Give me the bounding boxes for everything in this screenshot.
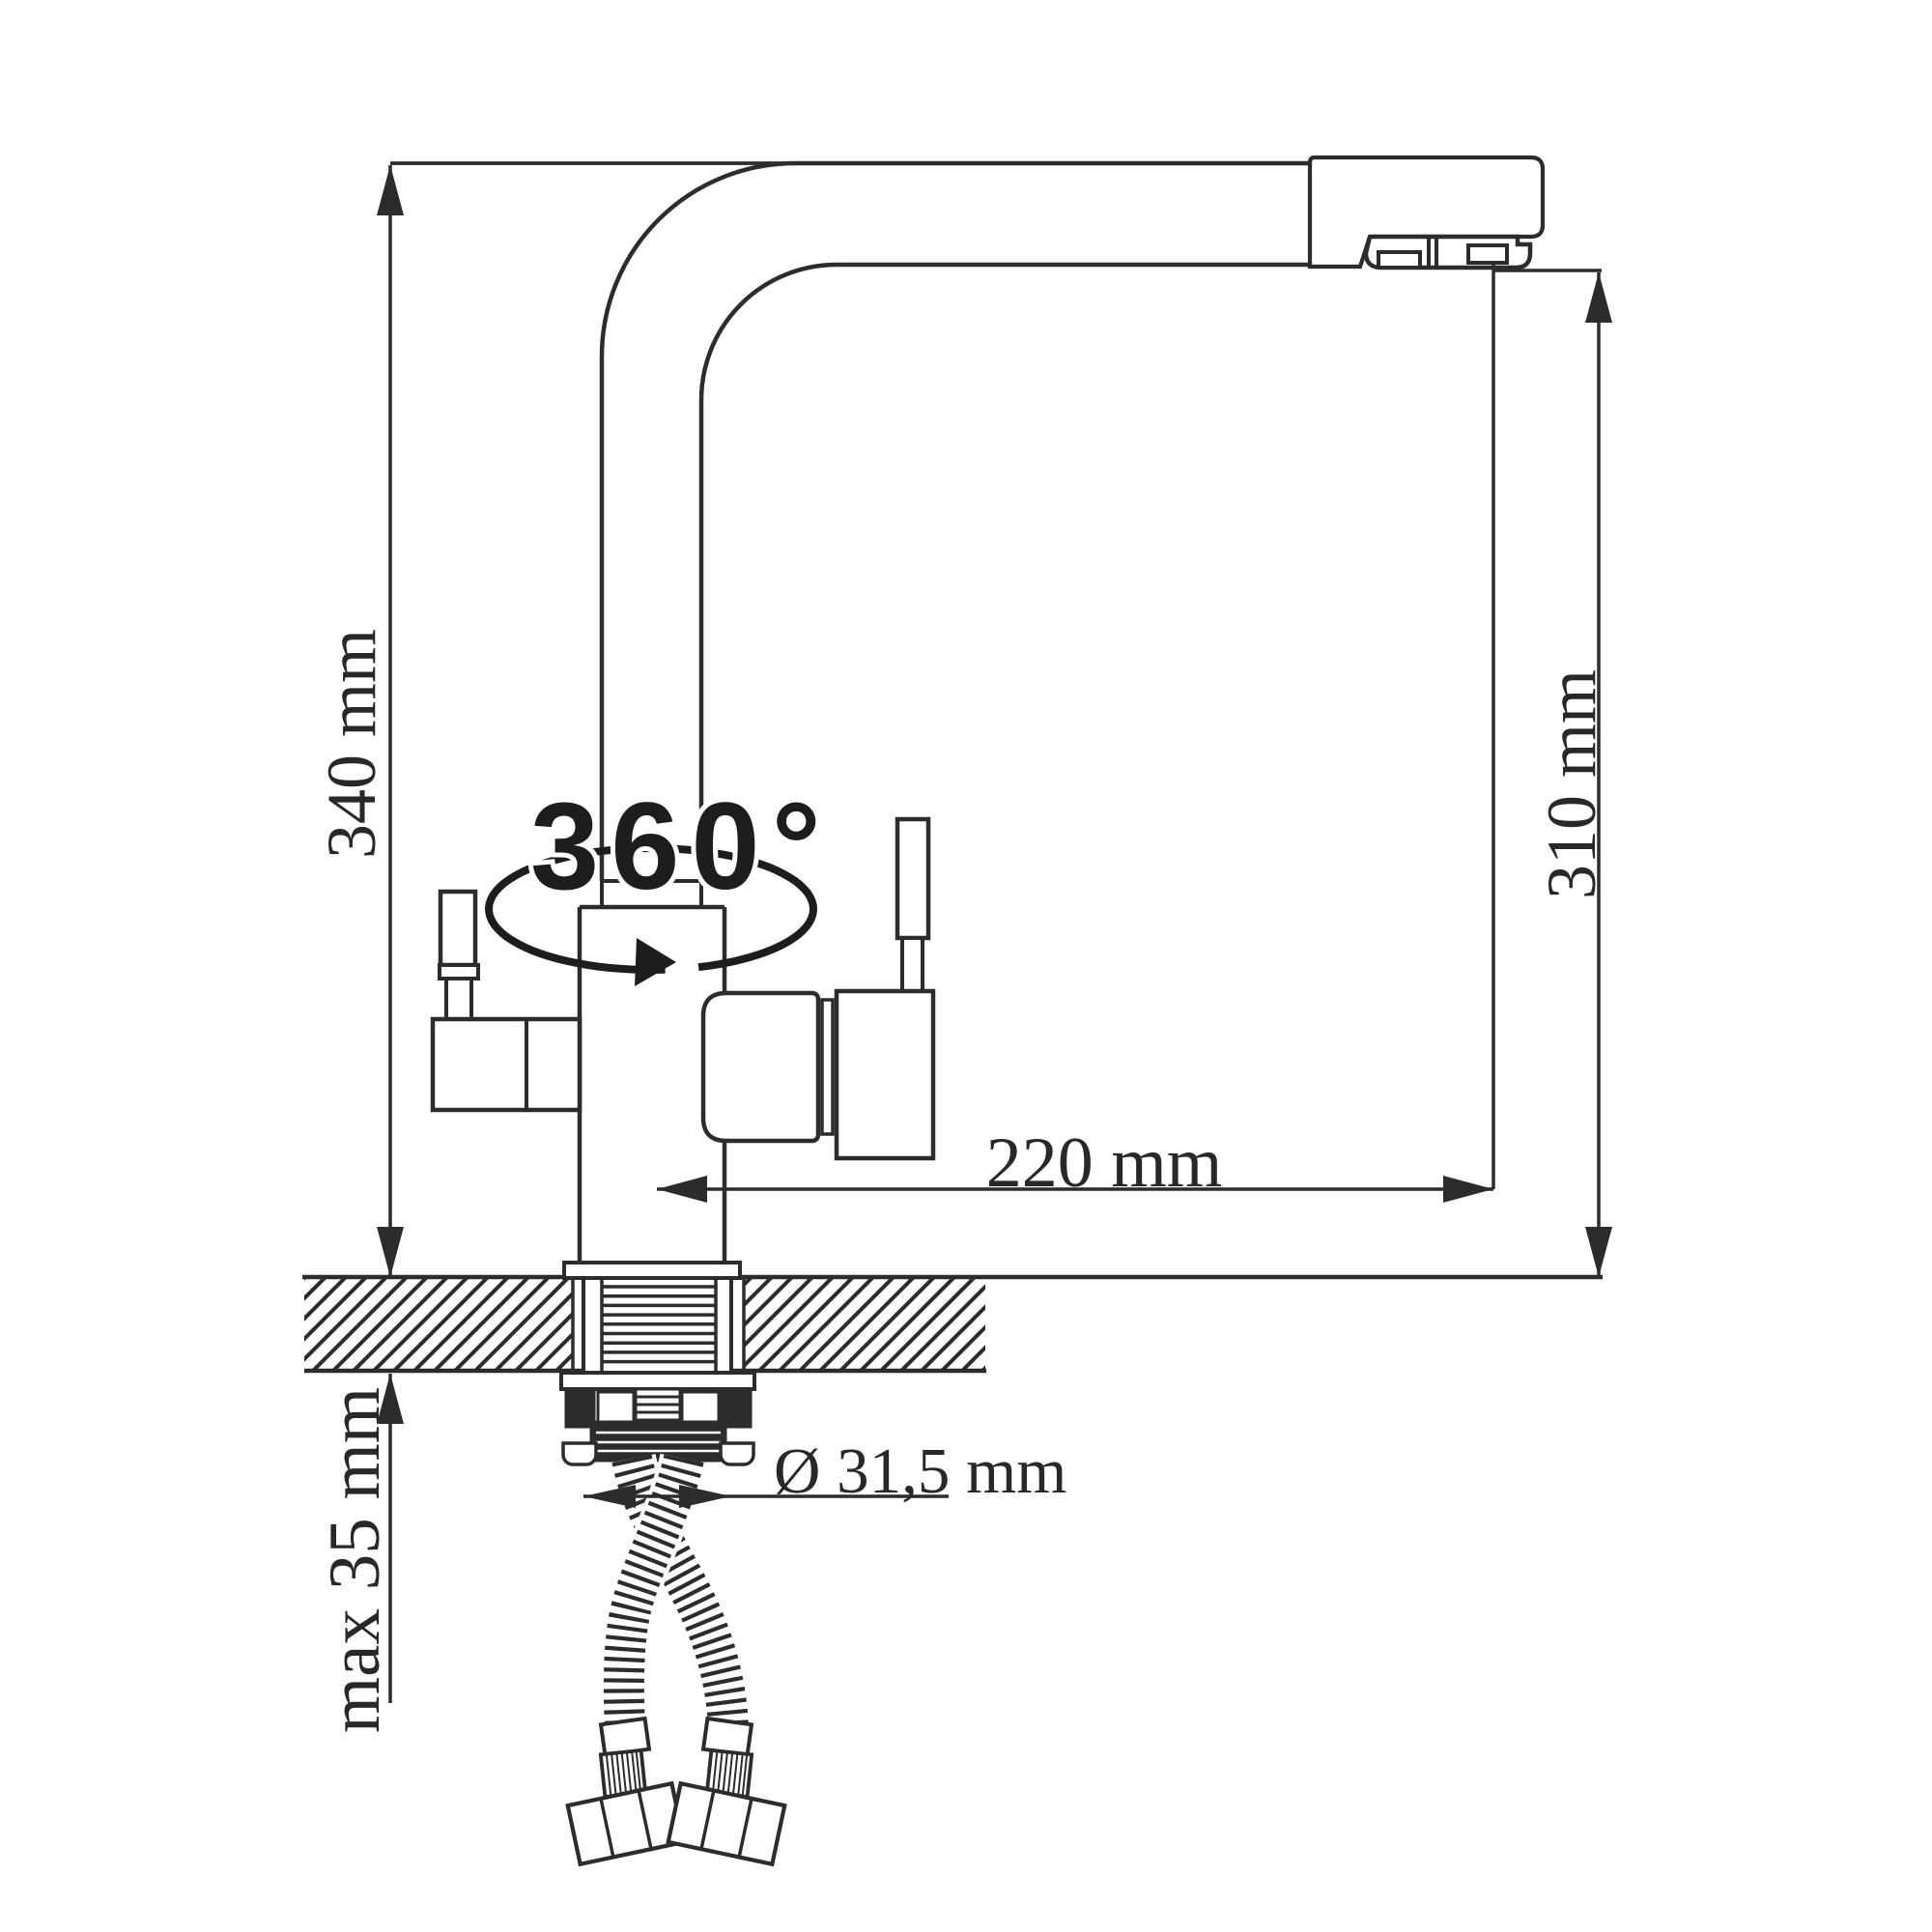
svg-text:340 mm: 340 mm — [313, 629, 390, 859]
svg-text:max 35 mm: max 35 mm — [315, 1387, 395, 1733]
svg-text:Ø 31,5 mm: Ø 31,5 mm — [774, 1435, 1066, 1507]
svg-text:310 mm: 310 mm — [1533, 669, 1610, 899]
svg-text:360°: 360° — [530, 778, 833, 916]
svg-text:220 mm: 220 mm — [986, 1123, 1223, 1203]
